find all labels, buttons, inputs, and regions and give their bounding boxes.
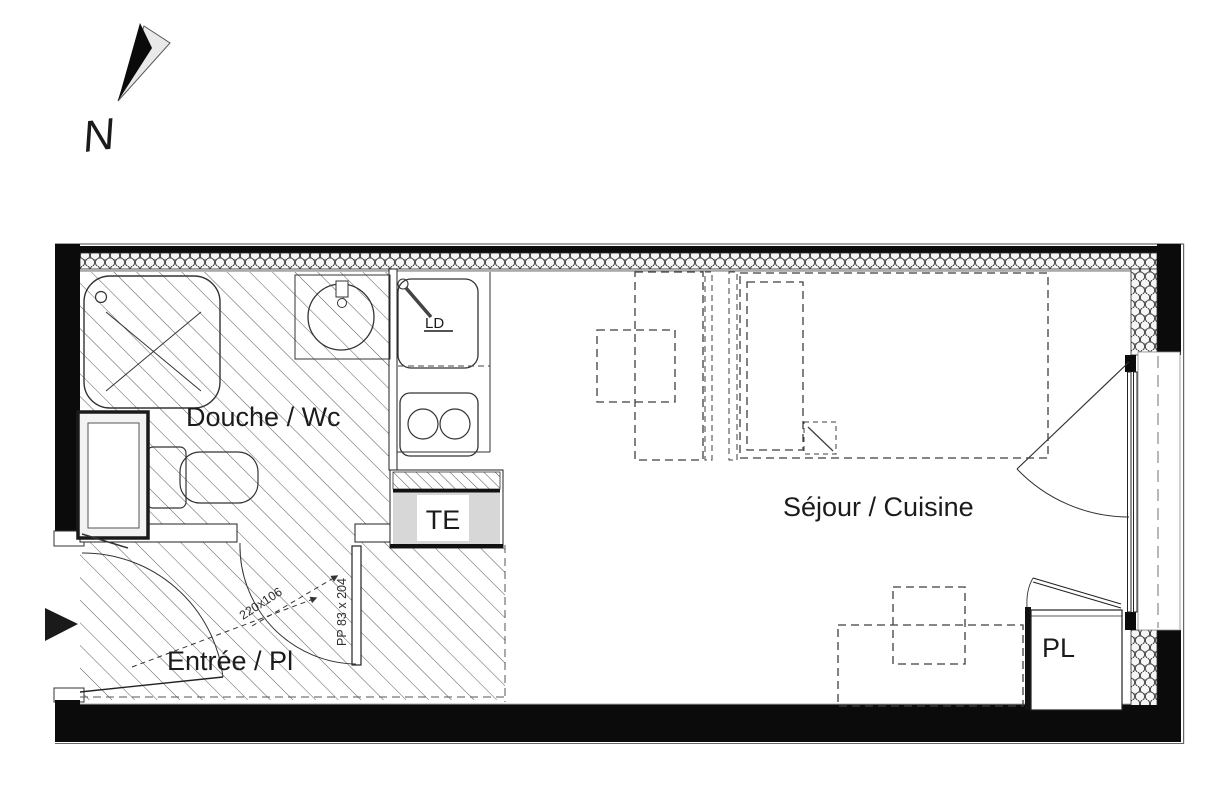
floor-plan-page: N: [0, 0, 1207, 800]
right-wall-insulation-lower: [1131, 630, 1157, 707]
mattress-fold-diagonal: [808, 427, 833, 451]
electrical-panel-label: TE: [426, 505, 461, 535]
bathroom-doorway-hatch: [237, 524, 355, 542]
kitchen-tap-icon: [398, 279, 408, 289]
floor-plan-svg: N: [0, 0, 1207, 800]
north-label: N: [80, 109, 118, 162]
closet-label: PL: [1042, 633, 1075, 663]
top-outer-hairline: [55, 244, 1184, 245]
bathroom-door-dimension: PP 83 x 204: [335, 578, 349, 646]
right-wall-insulation-upper: [1131, 269, 1157, 355]
bed-pillow: [747, 282, 803, 450]
closet-pl: PL: [1025, 578, 1122, 710]
washbasin-tap-icon: [336, 281, 348, 297]
right-wall-black-upper: [1157, 244, 1181, 355]
entry-direction-triangle-icon: [45, 608, 78, 641]
right-outer-hairline: [1183, 244, 1184, 744]
window-outer-reveal: [1138, 352, 1180, 630]
window-leaf: [1017, 362, 1129, 469]
electrical-panel-wall-hatch: [393, 472, 500, 489]
technical-duct: [78, 412, 148, 548]
entry-door-jamb-bottom: [54, 688, 84, 702]
table: [597, 330, 675, 402]
dashed-column-b: [729, 272, 737, 460]
kitchen-fixtures: [398, 279, 490, 456]
burner-icon: [408, 409, 438, 439]
top-wall-insulation: [80, 253, 1157, 269]
window-swing-arc: [1017, 469, 1129, 517]
window-glazing-line-b: [1134, 372, 1138, 612]
window-glazing-line-a: [1128, 372, 1132, 612]
bottom-wall-inner-hairline: [80, 704, 1131, 705]
closet-door-arc: [1027, 578, 1033, 607]
dashed-column-a: [705, 272, 712, 460]
bathroom-label: Douche / Wc: [186, 402, 341, 432]
sink-unit-label: LD: [425, 315, 444, 332]
top-wall-black-bar: [80, 246, 1157, 253]
bed: [740, 273, 1048, 458]
living-furniture: [597, 272, 1048, 706]
bottom-wall: [55, 705, 1181, 742]
desk: [838, 625, 1023, 706]
window-jamb-bottom: [1125, 612, 1136, 630]
wardrobe: [635, 272, 703, 460]
bathroom-door-leaf: [352, 546, 361, 665]
north-arrow: N: [80, 23, 170, 162]
bottom-outer-hairline: [55, 743, 1184, 744]
bathroom-door-jamb-stub: [355, 524, 391, 542]
closet-door-leaf: [1033, 578, 1121, 604]
burner-icon: [440, 409, 470, 439]
living-label: Séjour / Cuisine: [783, 492, 974, 522]
cooktop: [400, 393, 478, 456]
entry-label: Entrée / Pl: [167, 646, 293, 676]
french-window: [1017, 352, 1180, 630]
entry-floor-hatch: [80, 542, 505, 700]
top-wall-inner-hairline: [80, 271, 1131, 272]
electrical-panel: TE: [390, 470, 503, 548]
kitchen-tap-spout-icon: [406, 288, 431, 317]
